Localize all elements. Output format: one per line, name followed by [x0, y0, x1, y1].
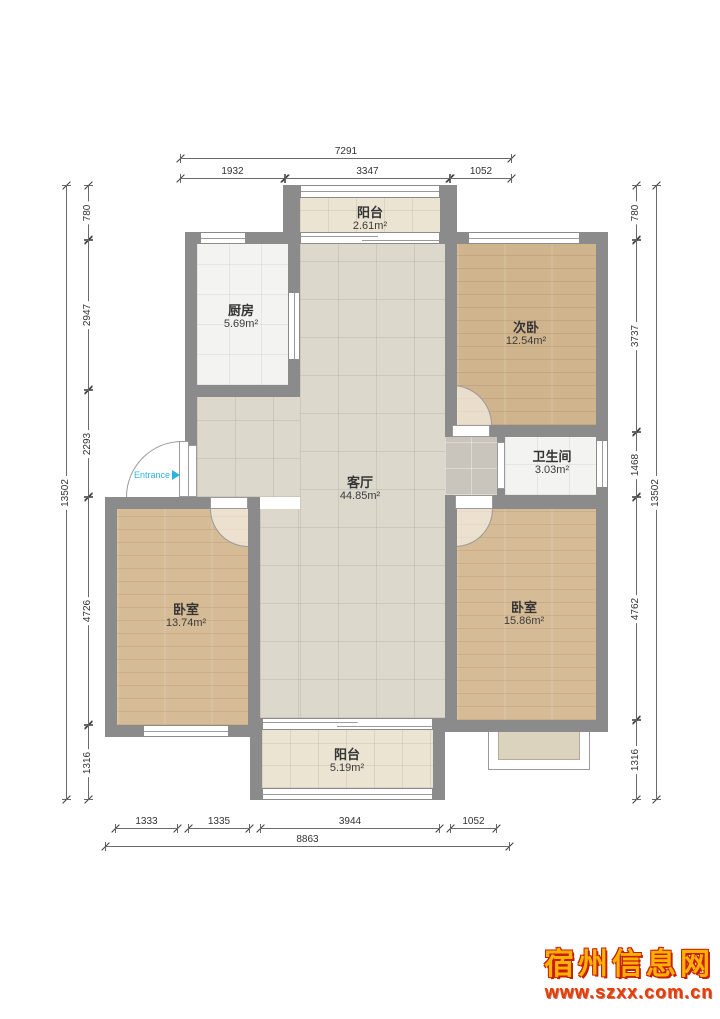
room-label-bathroom: 卫生间 3.03m²	[532, 449, 571, 477]
dim-value: 1316	[83, 748, 93, 776]
wall-segment	[445, 497, 457, 732]
dim-right-seg4: 4762	[628, 497, 642, 720]
dim-value: 13502	[651, 476, 661, 510]
room-label-second-bedroom: 次卧 12.54m²	[506, 320, 546, 348]
room-area: 5.69m²	[224, 318, 258, 331]
wall-segment	[185, 385, 300, 397]
watermark: 宿州信息网 www.szxx.com.cn	[540, 948, 718, 1002]
dim-top-seg2: 3347	[285, 166, 450, 180]
living-room-floor-lower	[260, 509, 300, 718]
dim-left-total: 13502	[58, 185, 72, 800]
dim-value: 1932	[180, 166, 285, 177]
dim-value: 3944	[260, 816, 440, 827]
room-area: 2.61m²	[353, 220, 387, 233]
balcony-living-sliding-door	[300, 232, 440, 244]
floor-plan-canvas: 阳台 2.61m² 厨房 5.69m² 次卧 12.54m² 卫生间 3.03m…	[0, 0, 720, 1019]
dim-value: 1052	[450, 816, 497, 827]
kitchen-window	[200, 232, 246, 244]
entry-hall-floor	[197, 397, 300, 497]
entrance-arrow-icon	[172, 470, 180, 480]
dim-left-seg5: 1316	[80, 725, 94, 800]
room-label-balcony-top: 阳台 2.61m²	[353, 205, 387, 233]
bathroom-door	[497, 442, 505, 489]
room-name: 卧室	[166, 602, 206, 617]
dim-value: 1335	[188, 816, 250, 827]
dim-value: 3737	[631, 322, 641, 350]
dim-value: 3347	[285, 166, 450, 177]
room-area: 12.54m²	[506, 335, 546, 348]
left-bedroom-door	[210, 497, 248, 509]
dim-value: 1316	[631, 746, 641, 774]
dim-value: 780	[631, 201, 641, 224]
dim-value: 2293	[83, 429, 93, 457]
wall-segment	[105, 497, 117, 737]
room-area: 13.74m²	[166, 617, 206, 630]
dim-bottom-seg2: 1335	[188, 816, 250, 830]
wall-segment	[445, 720, 608, 732]
dim-right-seg5: 1316	[628, 720, 642, 800]
wall-segment	[433, 718, 445, 800]
room-name: 卫生间	[532, 449, 571, 464]
wall-segment	[283, 185, 300, 244]
dim-value: 780	[83, 201, 93, 224]
room-label-left-bedroom: 卧室 13.74m²	[166, 602, 206, 630]
dim-top-total: 7291	[180, 146, 512, 160]
room-label-living: 客厅 44.85m²	[340, 475, 380, 503]
kitchen-sliding-door	[288, 292, 300, 360]
room-name: 阳台	[353, 205, 387, 220]
room-name: 卧室	[504, 600, 544, 615]
wall-segment	[185, 397, 197, 445]
dim-bottom-seg3: 3944	[260, 816, 440, 830]
room-label-balcony-bottom: 阳台 5.19m²	[330, 747, 364, 775]
room-label-right-bedroom: 卧室 15.86m²	[504, 600, 544, 628]
second-bedroom-door	[452, 425, 490, 437]
dim-right-total: 13502	[648, 185, 662, 800]
dim-left-seg2: 2947	[80, 240, 94, 390]
dim-top-seg3: 1052	[450, 166, 512, 180]
room-area: 3.03m²	[532, 464, 571, 477]
bathroom-window	[596, 440, 608, 488]
dim-left-seg1: 780	[80, 185, 94, 240]
wall-segment	[250, 718, 262, 800]
left-bedroom-window	[143, 725, 229, 737]
dim-value: 7291	[180, 146, 512, 157]
dim-right-seg2: 3737	[628, 240, 642, 432]
dim-left-seg3: 2293	[80, 390, 94, 497]
room-name: 次卧	[506, 320, 546, 335]
dim-bottom-seg1: 1333	[115, 816, 178, 830]
room-label-kitchen: 厨房 5.69m²	[224, 303, 258, 331]
wall-segment	[185, 232, 197, 397]
entrance-label: Entrance	[134, 470, 170, 480]
bay-window-sill	[498, 730, 580, 760]
balcony-bottom-window	[262, 788, 433, 800]
room-name: 客厅	[340, 475, 380, 490]
right-bedroom-door	[455, 495, 493, 509]
watermark-site-name: 宿州信息网	[540, 948, 718, 982]
dim-left-seg4: 4726	[80, 497, 94, 725]
dim-bottom-seg4: 1052	[450, 816, 497, 830]
hallway-niche-floor	[445, 437, 497, 495]
living-balcony-sliding-door	[262, 718, 433, 730]
dim-top-seg1: 1932	[180, 166, 285, 180]
room-area: 44.85m²	[340, 490, 380, 503]
dim-value: 1333	[115, 816, 178, 827]
wall-segment	[445, 244, 457, 437]
wall-segment	[248, 497, 260, 737]
entrance-door-leaf	[179, 441, 189, 497]
dim-value: 2947	[83, 301, 93, 329]
balcony-top-window	[300, 185, 440, 198]
watermark-site-url: www.szxx.com.cn	[540, 982, 718, 1002]
dim-right-seg3: 1468	[628, 432, 642, 497]
dim-value: 4726	[83, 597, 93, 625]
entrance-door-arc	[126, 441, 182, 497]
dim-value: 13502	[61, 476, 71, 510]
room-area: 15.86m²	[504, 615, 544, 628]
dim-value: 1052	[450, 166, 512, 177]
dim-bottom-total: 8863	[105, 834, 510, 848]
dim-right-seg1: 780	[628, 185, 642, 240]
room-area: 5.19m²	[330, 762, 364, 775]
dim-value: 4762	[631, 594, 641, 622]
entrance-marker: Entrance	[134, 470, 180, 480]
dim-value: 1468	[631, 450, 641, 478]
room-name: 阳台	[330, 747, 364, 762]
second-bedroom-window	[468, 232, 580, 244]
room-name: 厨房	[224, 303, 258, 318]
dim-value: 8863	[105, 834, 510, 845]
